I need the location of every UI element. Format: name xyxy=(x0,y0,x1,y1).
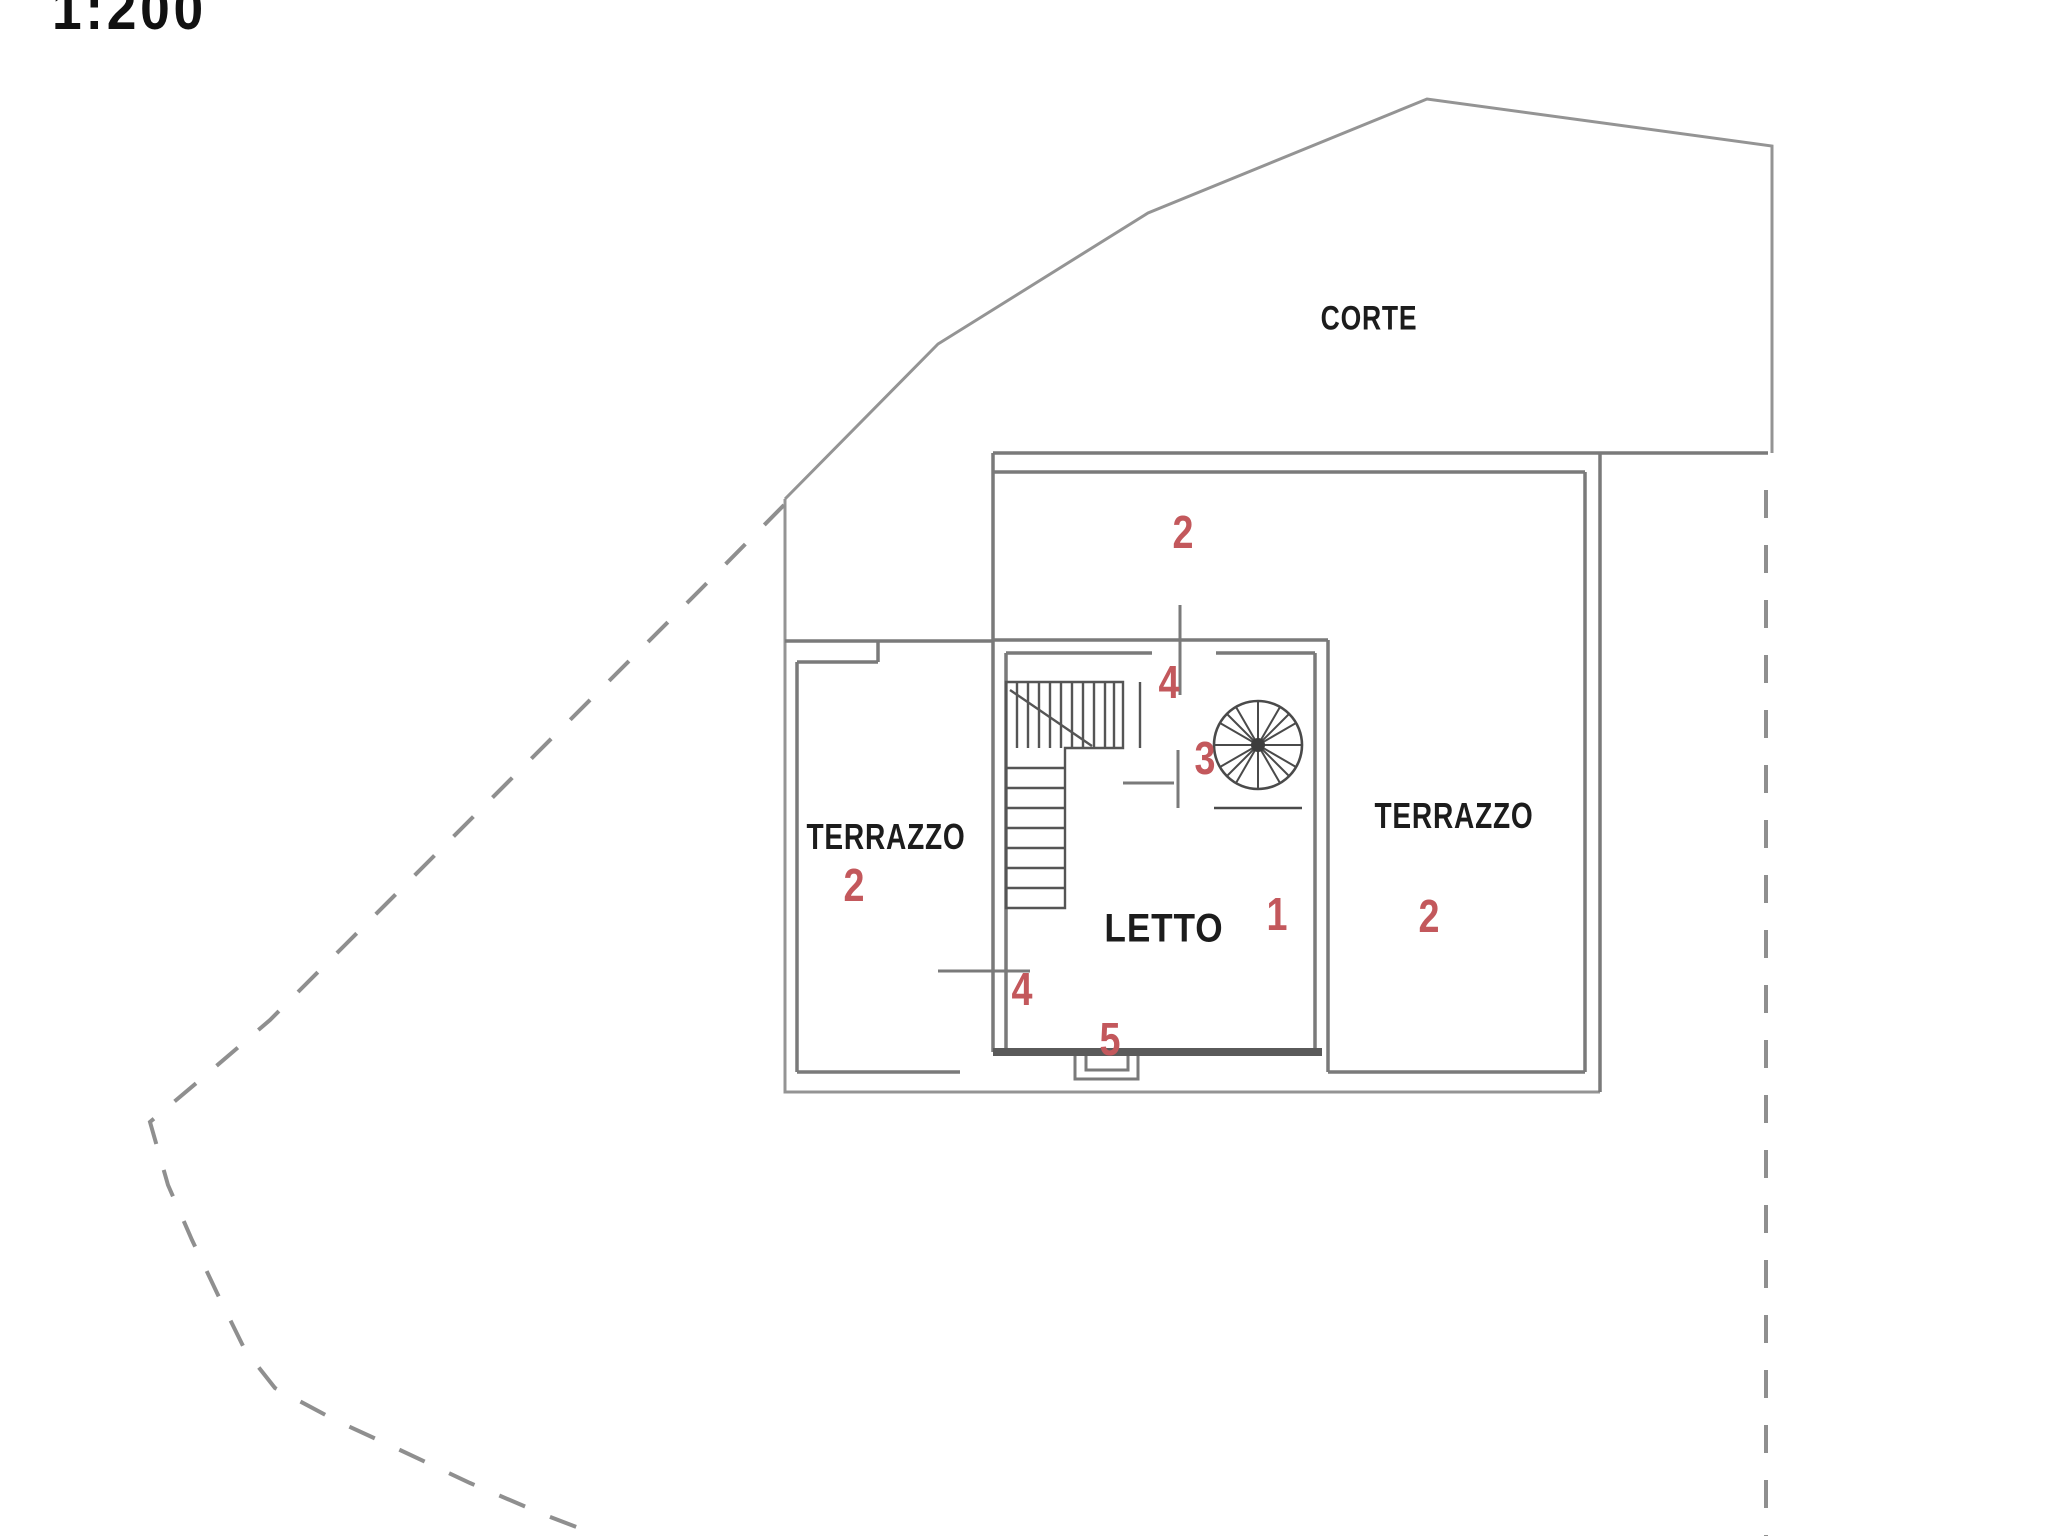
floor-plan-page: 1:200 CORTE TERRAZZO TERRAZZO LETTO 2 2 … xyxy=(0,0,2048,1536)
upper-door-number: 4 xyxy=(1159,655,1180,709)
scale-label: 1:200 xyxy=(52,0,207,43)
courtyard-walls xyxy=(797,453,1768,1092)
west-window-number: 4 xyxy=(1012,962,1033,1016)
courtyard-strip-number: 2 xyxy=(1173,505,1194,559)
boundary-polyline-top xyxy=(785,99,1772,499)
terrace-left-number: 2 xyxy=(844,858,865,912)
plan-linework xyxy=(0,0,2048,1536)
bedroom-number: 1 xyxy=(1267,887,1288,941)
terrace-left-label: TERRAZZO xyxy=(806,816,965,858)
south-door-number: 5 xyxy=(1100,1012,1121,1066)
terrace-right-label: TERRAZZO xyxy=(1374,795,1533,837)
inner-door-number: 3 xyxy=(1195,731,1216,785)
terrace-right-number: 2 xyxy=(1419,889,1440,943)
bedroom-label: LETTO xyxy=(1104,907,1223,952)
courtyard-label: CORTE xyxy=(1321,300,1418,339)
staircase-icon xyxy=(1006,682,1140,908)
opening-marks xyxy=(938,605,1180,1079)
spiral-staircase-icon xyxy=(1214,701,1302,808)
boundary-dashed-left xyxy=(150,505,784,1536)
